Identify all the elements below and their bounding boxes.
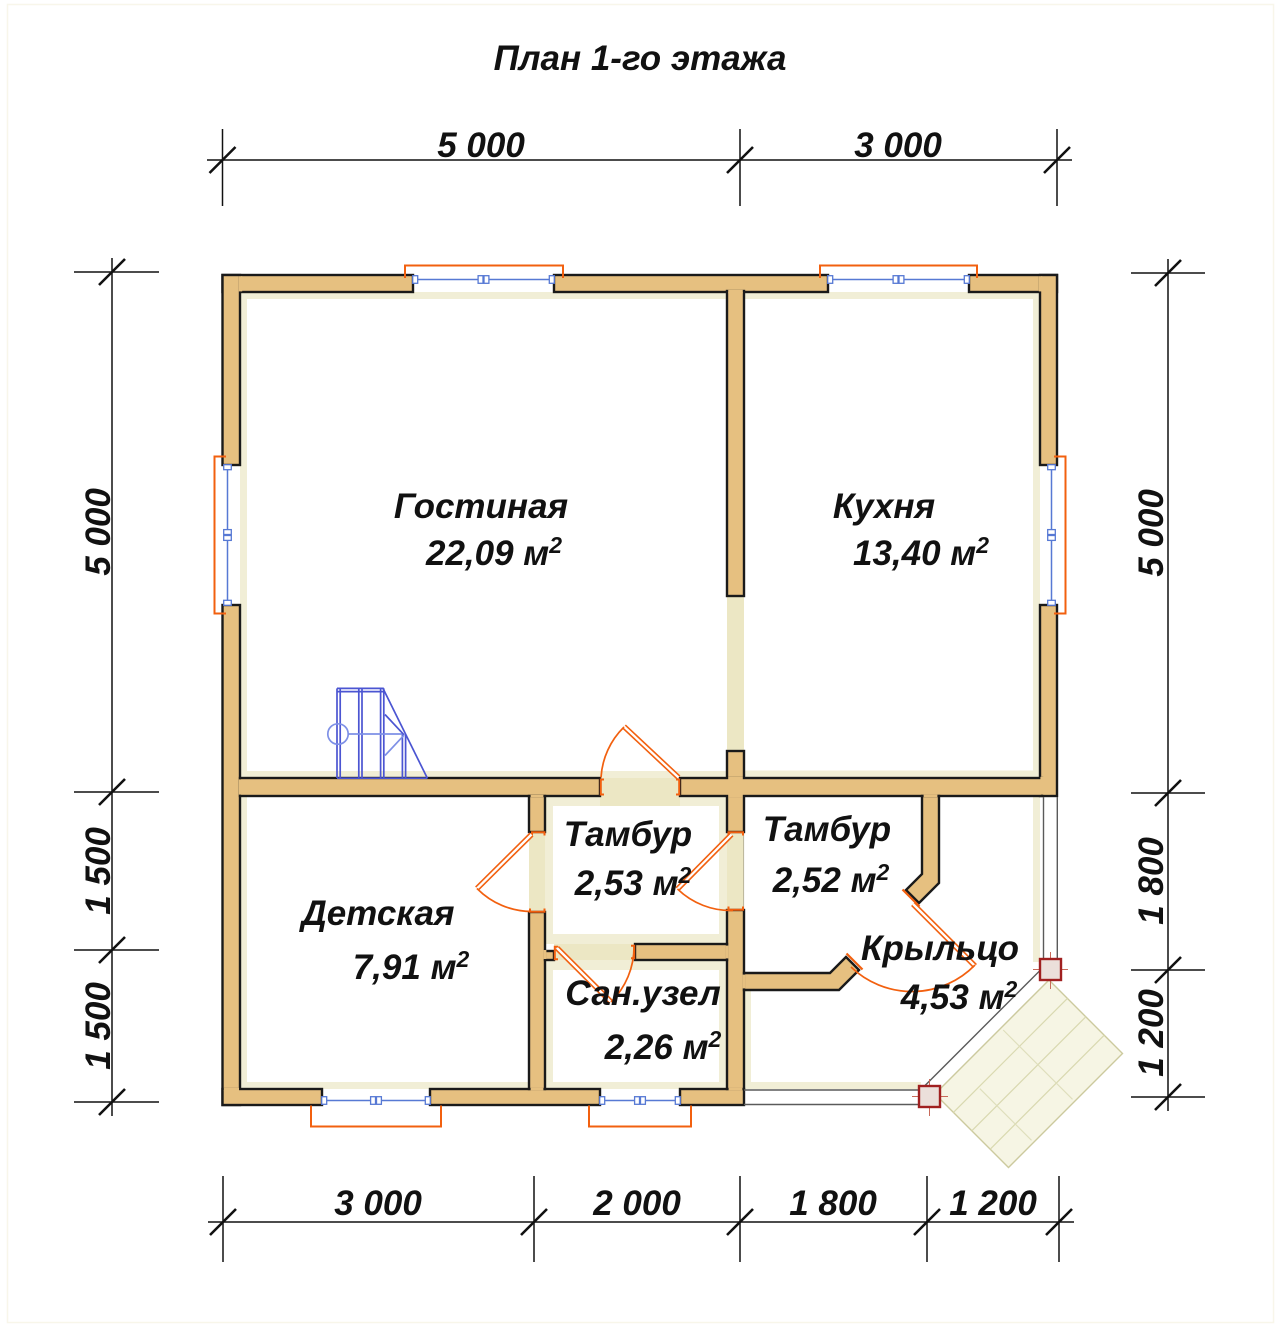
svg-text:1 800: 1 800 — [789, 1184, 877, 1223]
svg-text:3 000: 3 000 — [854, 126, 942, 165]
svg-text:3 000: 3 000 — [334, 1184, 422, 1223]
svg-text:4,53 м2: 4,53 м2 — [900, 976, 1018, 1017]
svg-text:Сан.узел: Сан.узел — [565, 974, 721, 1013]
svg-text:Гостиная: Гостиная — [394, 487, 568, 526]
svg-text:Кухня: Кухня — [833, 487, 935, 526]
svg-text:2,53 м2: 2,53 м2 — [574, 862, 692, 903]
svg-text:Тамбур: Тамбур — [763, 810, 891, 849]
svg-text:1 200: 1 200 — [949, 1184, 1037, 1223]
svg-text:5 000: 5 000 — [437, 126, 525, 165]
svg-text:Детская: Детская — [298, 894, 454, 933]
svg-text:13,40 м2: 13,40 м2 — [853, 532, 989, 573]
svg-text:План 1-го этажа: План 1-го этажа — [494, 39, 787, 78]
svg-text:1 200: 1 200 — [1132, 989, 1171, 1077]
svg-text:5 000: 5 000 — [79, 488, 118, 576]
svg-text:5 000: 5 000 — [1132, 489, 1171, 577]
svg-text:Тамбур: Тамбур — [564, 815, 692, 854]
svg-text:2,52 м2: 2,52 м2 — [772, 859, 890, 900]
svg-text:2 000: 2 000 — [592, 1184, 681, 1223]
svg-text:1 800: 1 800 — [1132, 837, 1171, 925]
svg-text:22,09 м2: 22,09 м2 — [425, 532, 562, 573]
svg-text:1 500: 1 500 — [79, 827, 118, 915]
svg-text:Крыльцо: Крыльцо — [861, 929, 1019, 968]
svg-text:7,91 м2: 7,91 м2 — [353, 946, 470, 987]
svg-text:1 500: 1 500 — [79, 982, 118, 1070]
svg-text:2,26 м2: 2,26 м2 — [604, 1026, 722, 1067]
